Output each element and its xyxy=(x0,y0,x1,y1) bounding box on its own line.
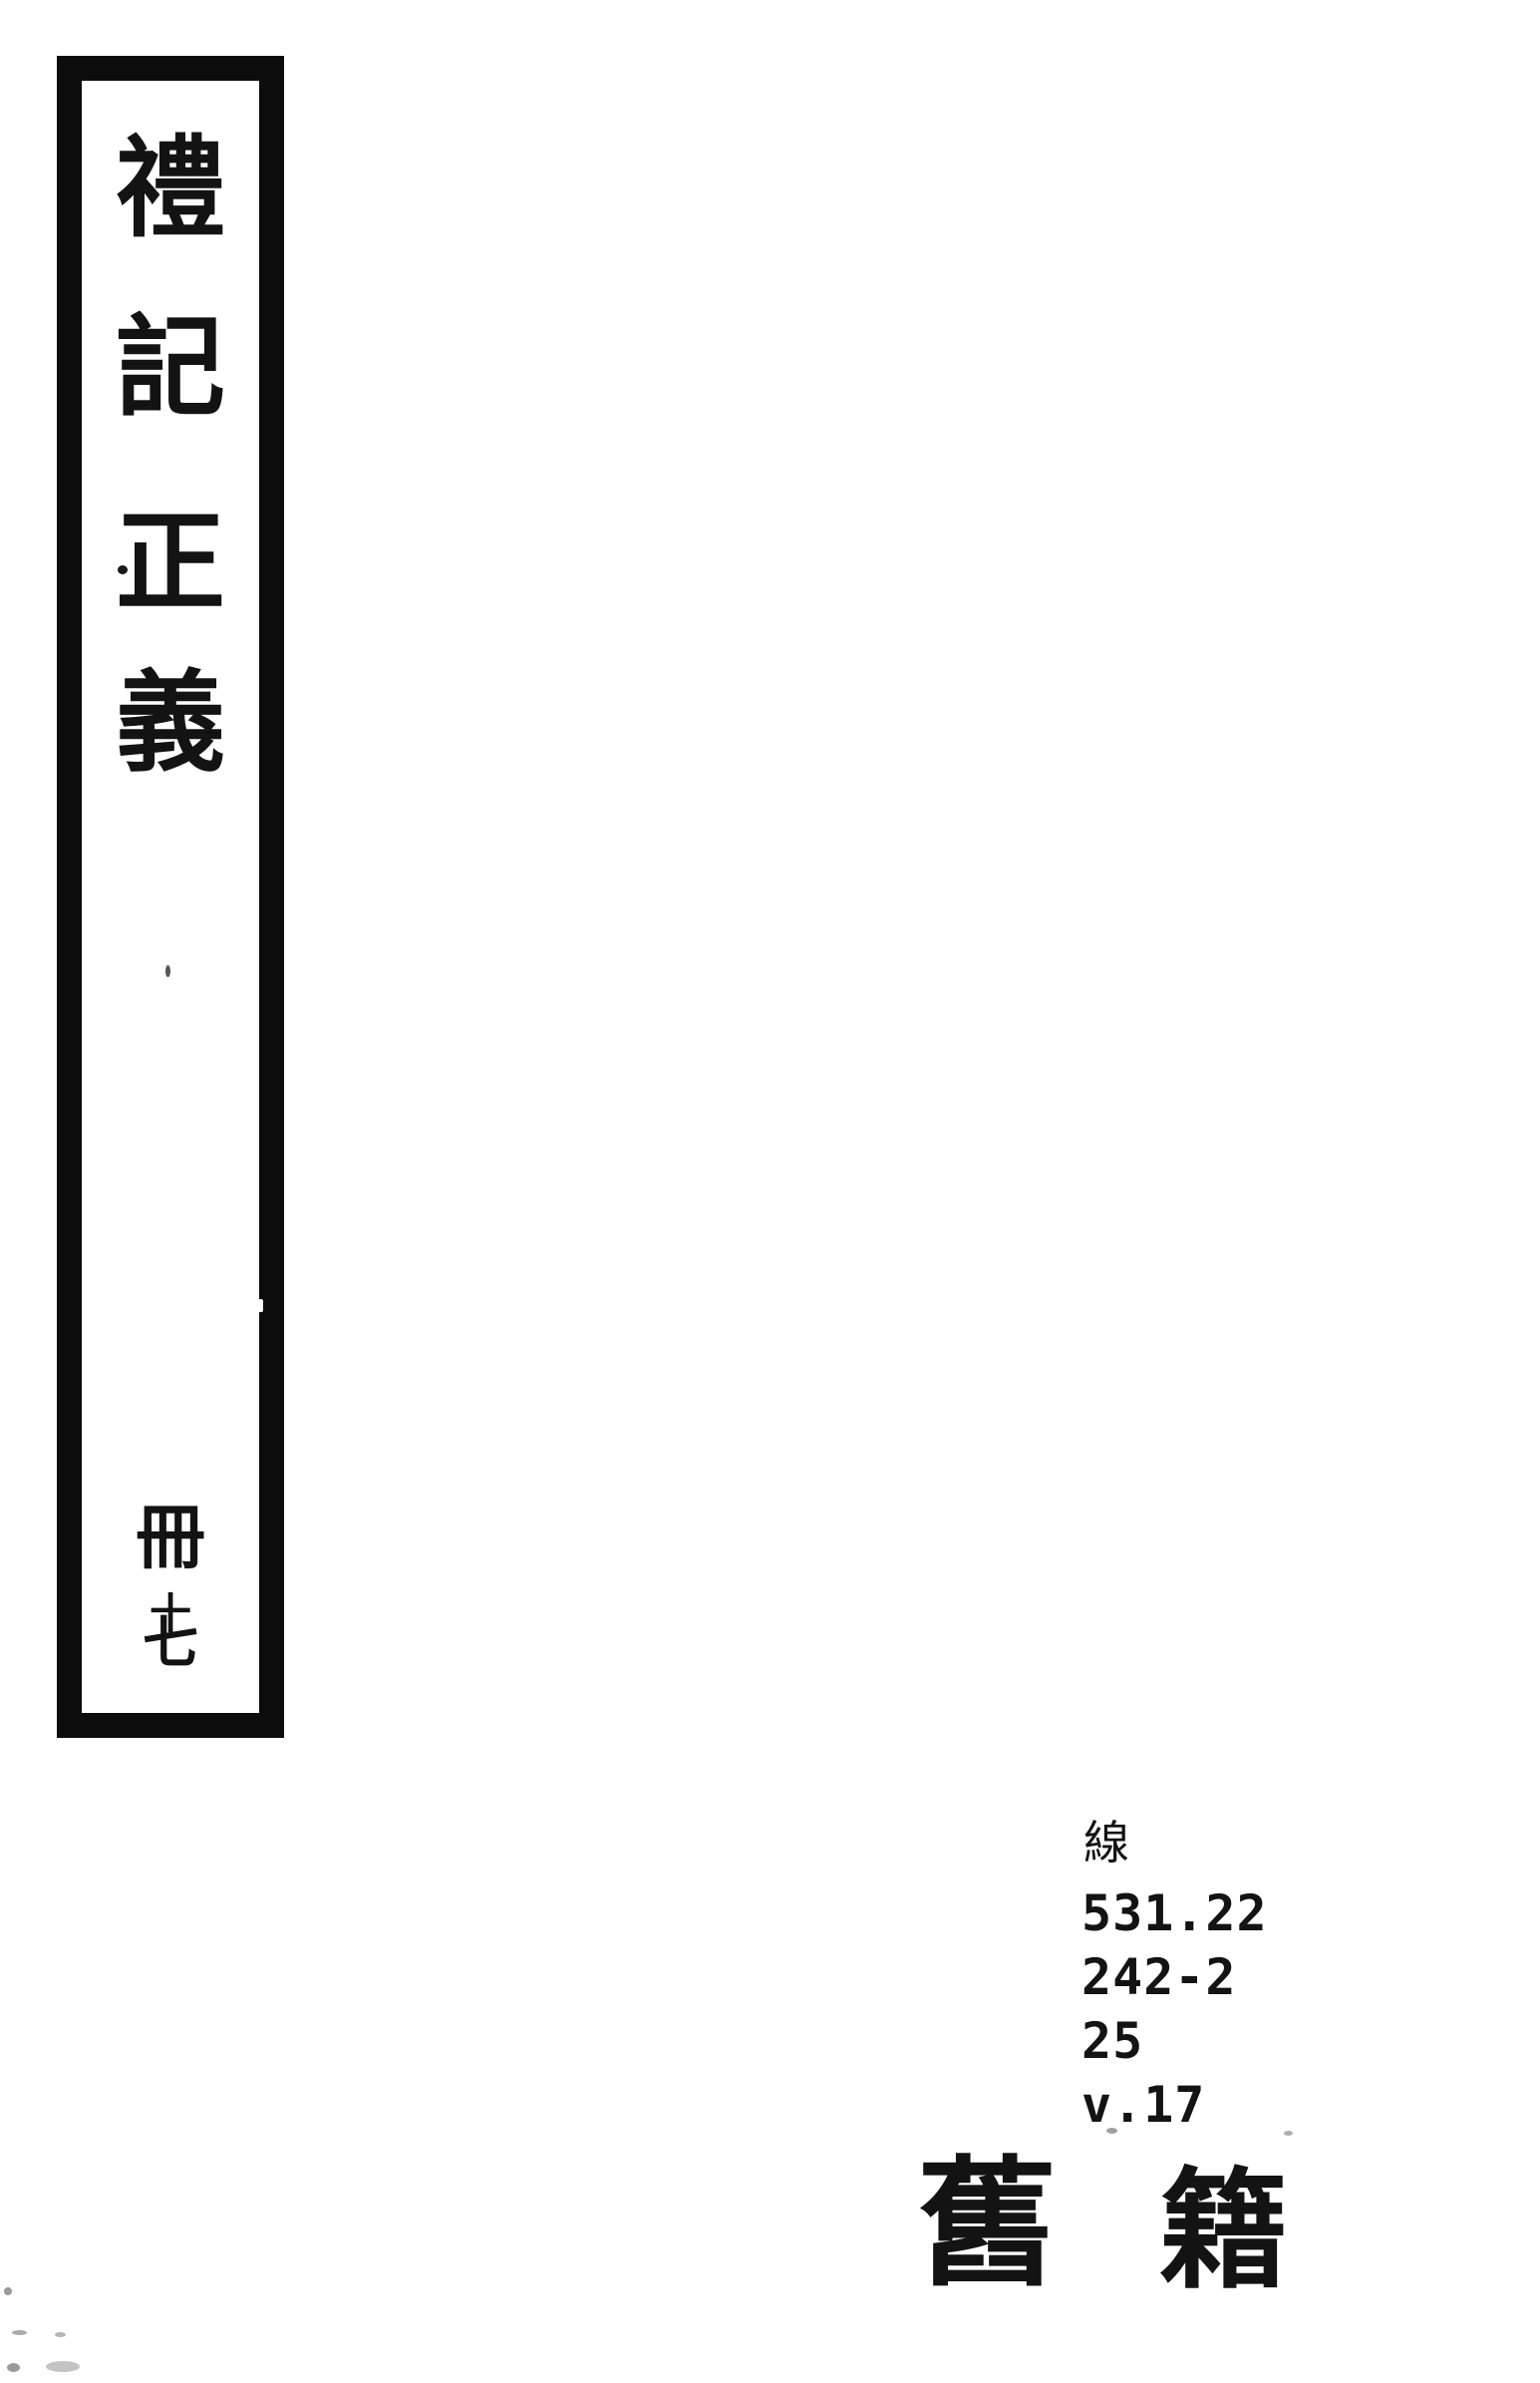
spine-title-char-3: 正 xyxy=(82,509,259,618)
spine-title-char-4: 義 xyxy=(82,669,259,779)
scanned-book-cover: 禮 記 正 義 冊 十 七 線 531.22 242-2 25 v.17 舊 籍 xyxy=(0,0,1540,2383)
stamp-char-jiu: 舊 xyxy=(917,2157,1057,2296)
call-number-category: 線 xyxy=(1083,1819,1268,1870)
border-notch xyxy=(256,1299,263,1312)
scan-speck xyxy=(46,2361,80,2372)
stamp-char-ji: 籍 xyxy=(1159,2168,1289,2297)
scan-speck xyxy=(7,2363,20,2372)
scan-speck xyxy=(1284,2131,1293,2136)
scan-speck xyxy=(1106,2128,1117,2134)
spine-title-box: 禮 記 正 義 冊 十 七 xyxy=(57,56,284,1738)
call-number-line-volume: v.17 xyxy=(1081,2073,1268,2137)
spine-volume-char-qi: 七 xyxy=(82,1616,259,1672)
ink-speck xyxy=(118,565,128,574)
scan-speck xyxy=(12,2330,27,2335)
spine-volume-char-ce: 冊 xyxy=(82,1505,259,1574)
spine-title-char-1: 禮 xyxy=(82,135,259,244)
call-number-line-classification: 531.22 xyxy=(1081,1881,1268,1945)
call-number: 線 531.22 242-2 25 v.17 xyxy=(1081,1819,1268,2137)
call-number-line-copy: 25 xyxy=(1081,2009,1268,2073)
scan-speck xyxy=(4,2287,12,2295)
scan-speck xyxy=(165,965,170,977)
call-number-line-author: 242-2 xyxy=(1081,1945,1268,2009)
scan-speck xyxy=(55,2332,66,2337)
spine-title-char-2: 記 xyxy=(82,314,259,424)
